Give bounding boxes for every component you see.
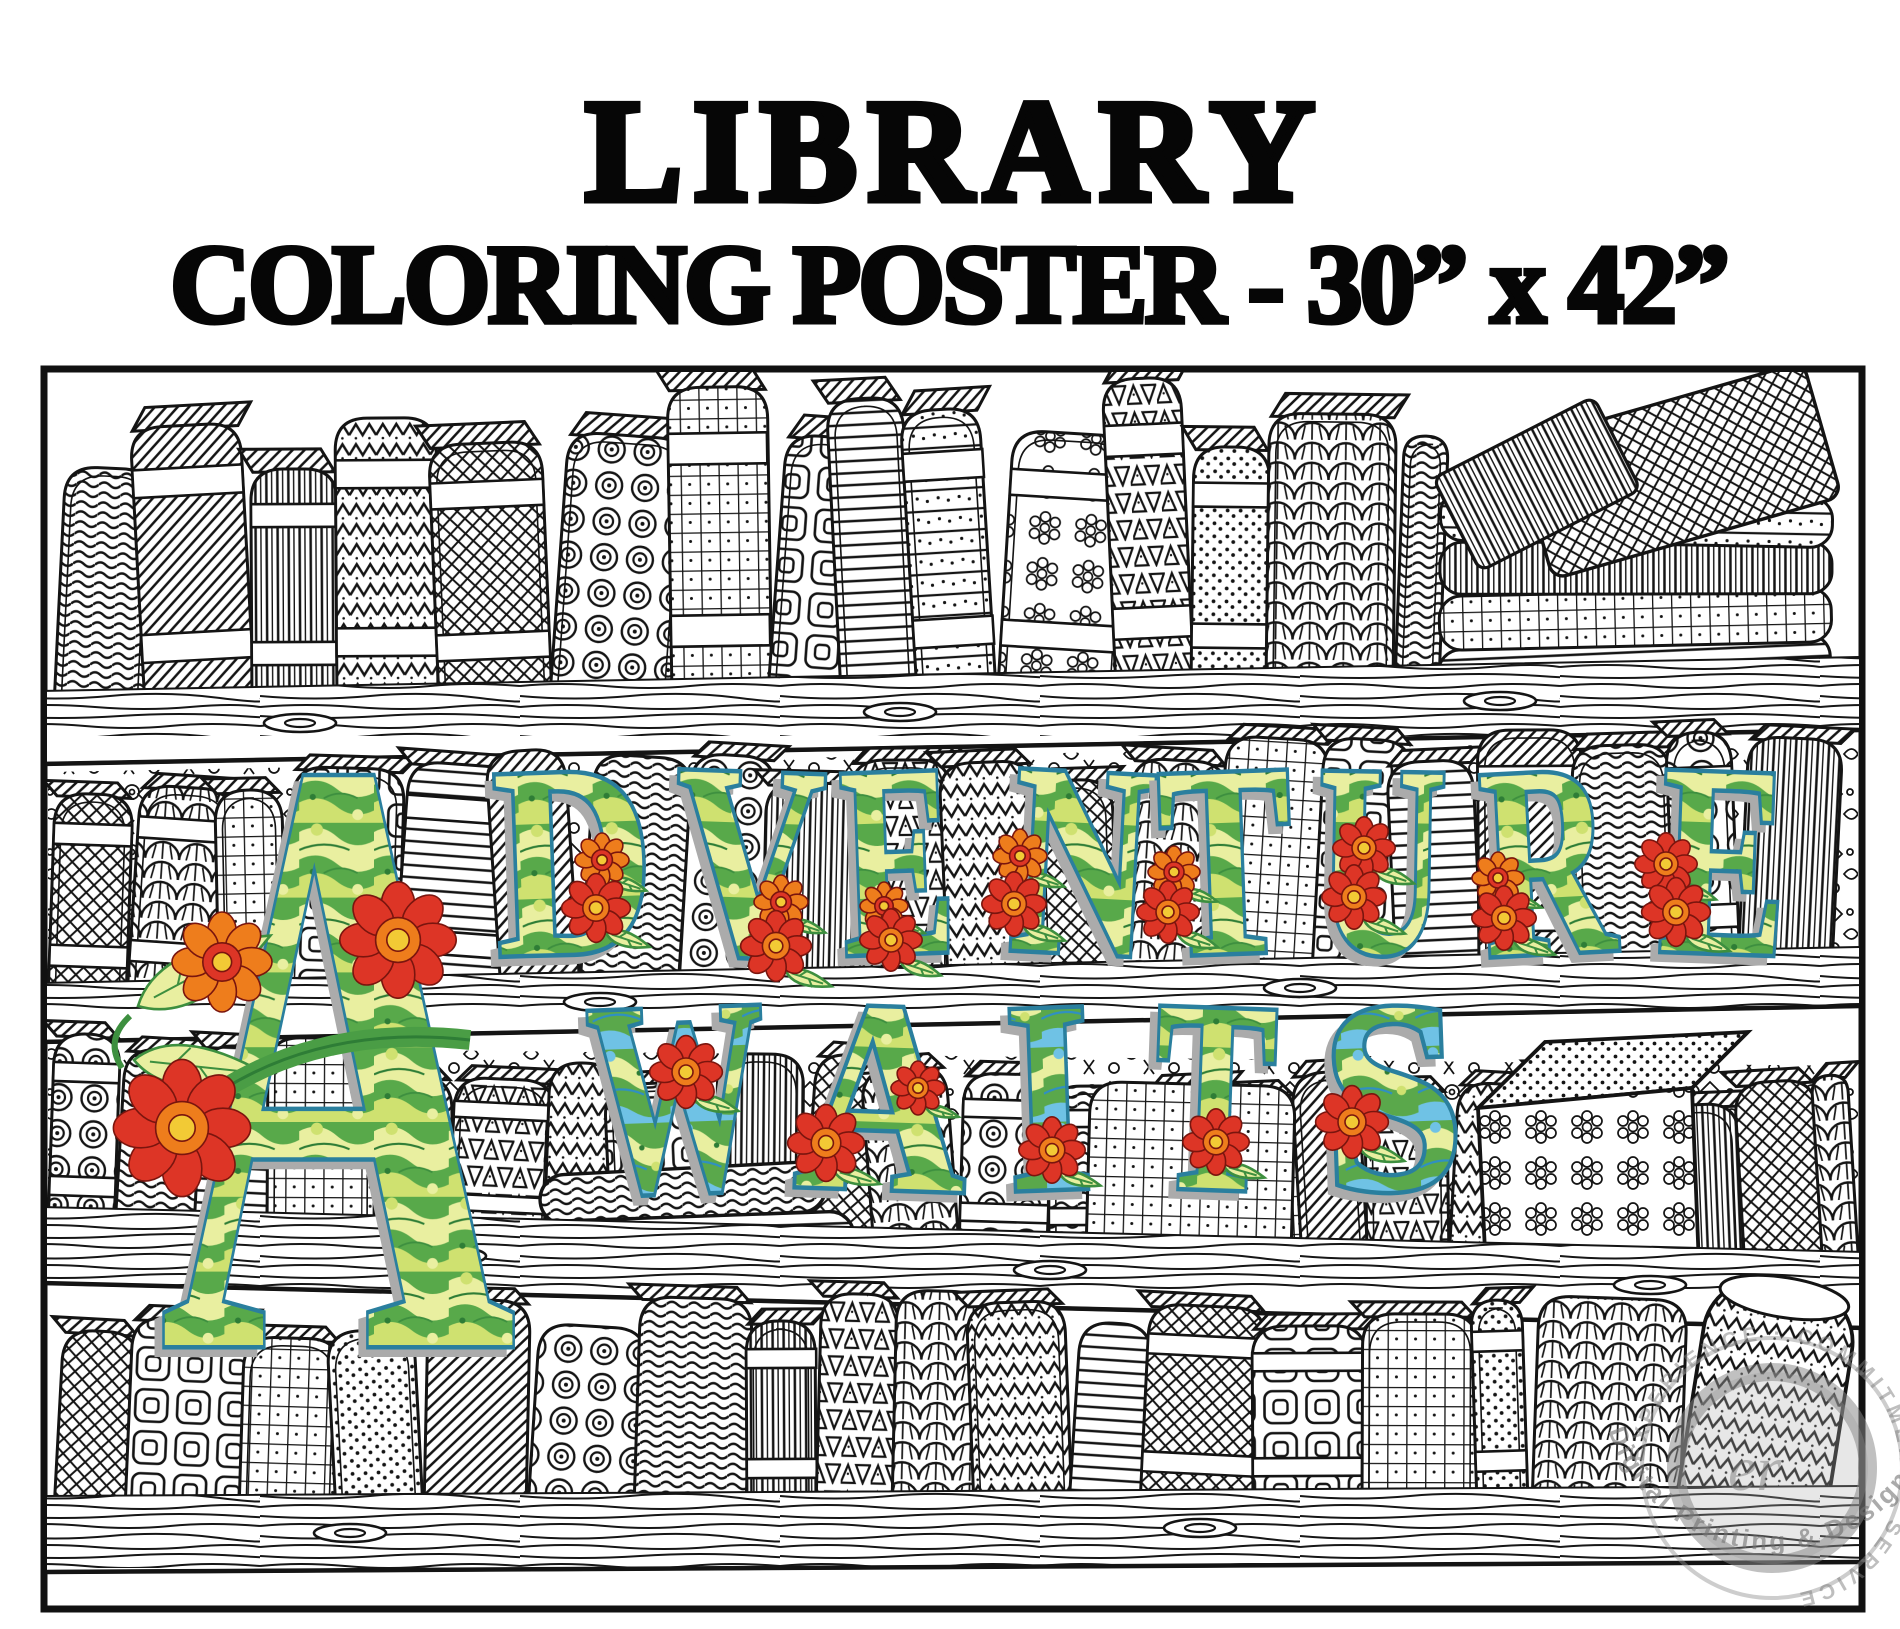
svg-text:A: A [792,943,972,1250]
svg-text:T: T [1150,944,1280,1249]
svg-text:I: I [1002,945,1096,1249]
svg-text:COLORING POSTER - 30” x 42”: COLORING POSTER - 30” x 42” [170,223,1730,347]
svg-text:er: er [1728,1433,1782,1504]
